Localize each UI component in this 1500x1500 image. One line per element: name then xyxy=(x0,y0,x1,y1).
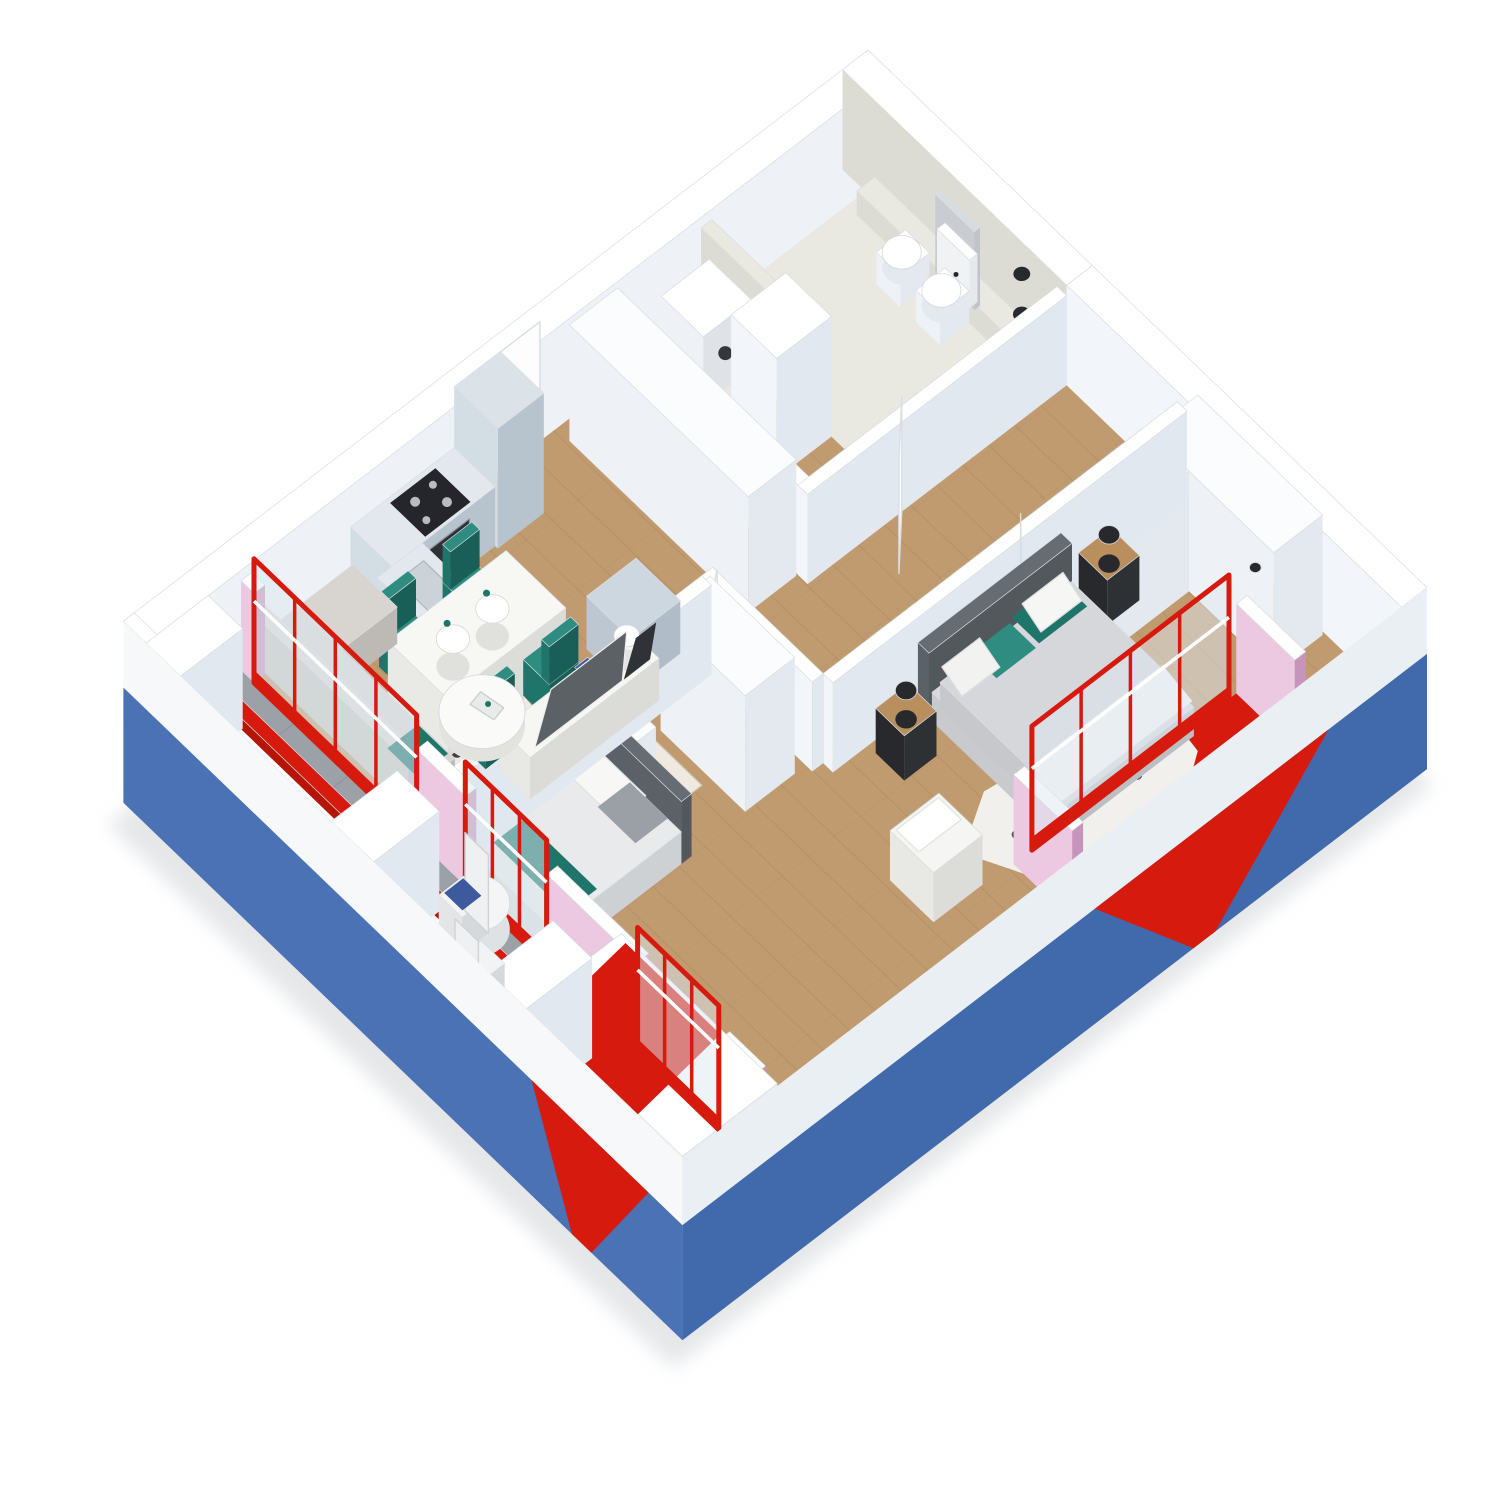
magazine-accent xyxy=(485,701,491,707)
napkin-2 xyxy=(444,620,451,627)
coffee-table xyxy=(439,675,525,762)
bidet-bowl xyxy=(922,274,961,323)
toilet-bowl xyxy=(882,236,921,285)
napkin-1 xyxy=(483,590,490,597)
floorplan-render xyxy=(0,0,1500,1500)
washer-door xyxy=(718,346,732,360)
page xyxy=(0,0,1500,1500)
bidet-faucet xyxy=(953,272,958,277)
